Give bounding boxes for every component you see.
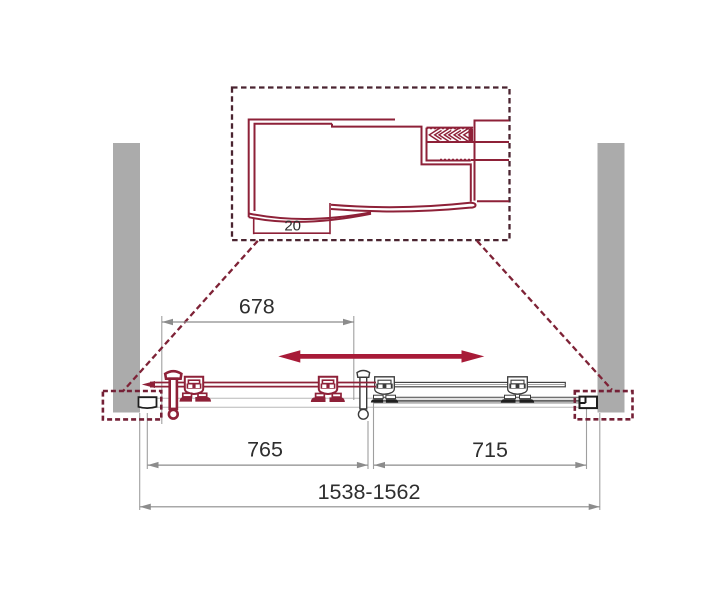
svg-text:715: 715 bbox=[472, 438, 508, 462]
svg-text:765: 765 bbox=[247, 438, 283, 462]
svg-text:20: 20 bbox=[284, 217, 301, 234]
svg-text:1538-1562: 1538-1562 bbox=[318, 480, 421, 504]
svg-text:678: 678 bbox=[239, 295, 275, 319]
